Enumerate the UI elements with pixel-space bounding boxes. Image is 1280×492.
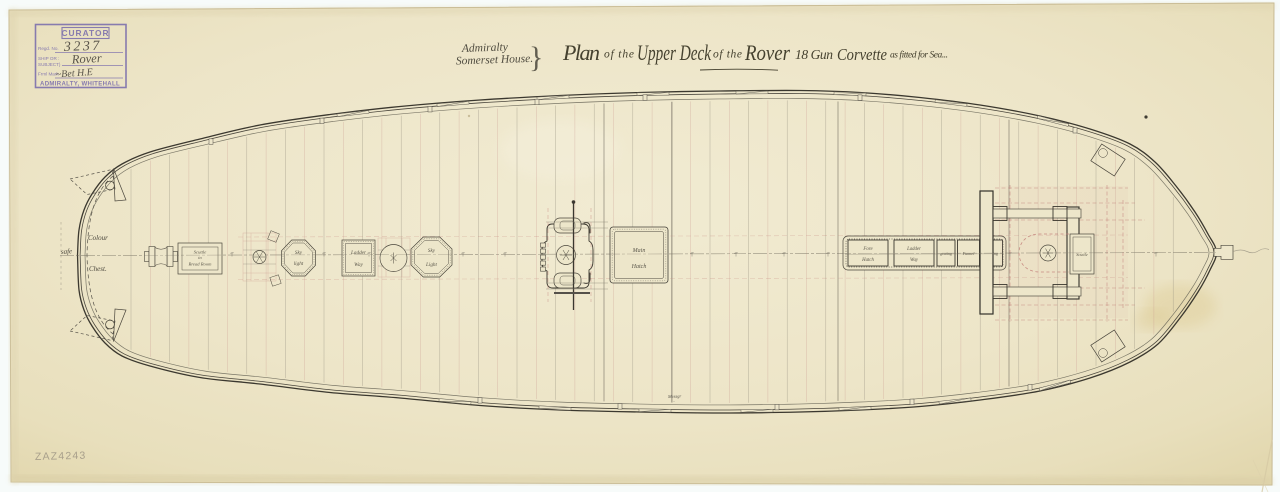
svg-text:Main: Main bbox=[632, 248, 646, 254]
svg-text:18 Gun: 18 Gun bbox=[795, 47, 833, 62]
svg-text:··: ·· bbox=[673, 400, 675, 404]
svg-text:Funnel: Funnel bbox=[962, 251, 976, 256]
svg-text:Ladder: Ladder bbox=[350, 250, 367, 256]
svg-text:Hatch: Hatch bbox=[861, 258, 874, 263]
svg-text:ADMIRALTY, WHITEHALL: ADMIRALTY, WHITEHALL bbox=[40, 80, 120, 87]
svg-text:Corvette: Corvette bbox=[837, 45, 887, 64]
svg-text:Sky: Sky bbox=[428, 248, 436, 254]
svg-text:}: } bbox=[529, 41, 543, 74]
svg-text:Regd. No.: Regd. No. bbox=[38, 46, 59, 51]
svg-text:Rover: Rover bbox=[70, 51, 102, 67]
svg-text:Plan: Plan bbox=[562, 40, 600, 65]
svg-text:Light: Light bbox=[425, 262, 438, 268]
svg-text:SUBJECT): SUBJECT) bbox=[38, 62, 61, 67]
svg-text:safe: safe bbox=[61, 247, 73, 256]
svg-text:Upper Deck: Upper Deck bbox=[637, 40, 712, 65]
svg-text:Bread Room: Bread Room bbox=[189, 262, 213, 267]
svg-text:SHIP OR :: SHIP OR : bbox=[38, 56, 59, 61]
svg-text:Hatch: Hatch bbox=[631, 264, 647, 270]
svg-text:Ladder: Ladder bbox=[906, 247, 921, 252]
svg-text:Way: Way bbox=[910, 258, 919, 263]
svg-text:ZAZ4243: ZAZ4243 bbox=[35, 450, 87, 463]
svg-text:grating: grating bbox=[940, 251, 952, 256]
svg-text:as fitted for Sea...: as fitted for Sea... bbox=[890, 50, 948, 61]
svg-text:Way: Way bbox=[354, 262, 363, 268]
svg-text:CURATOR: CURATOR bbox=[61, 28, 109, 38]
svg-text:Colour: Colour bbox=[88, 234, 108, 242]
svg-text:of the: of the bbox=[604, 49, 634, 61]
svg-text:Fore: Fore bbox=[862, 247, 873, 252]
svg-text:Chest.: Chest. bbox=[89, 265, 107, 273]
svg-text:Messgr: Messgr bbox=[667, 394, 682, 400]
svg-text:Rover: Rover bbox=[744, 40, 790, 65]
svg-text:Scuttle: Scuttle bbox=[194, 250, 207, 255]
svg-text:of the: of the bbox=[713, 49, 742, 61]
svg-text:light: light bbox=[294, 261, 304, 267]
